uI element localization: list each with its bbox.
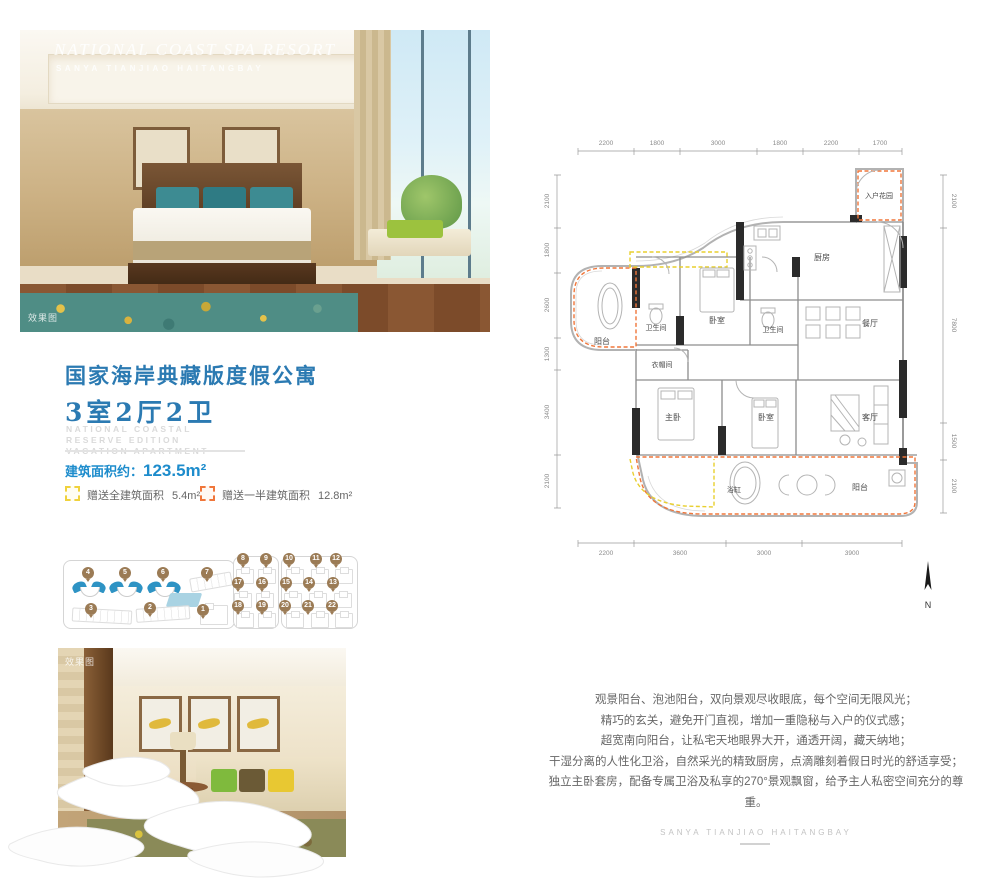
dim-label: 2600 [544,297,551,312]
dim-label: 2200 [599,140,614,147]
orange-dashed-swatch [200,486,215,501]
building-footprint [236,613,254,628]
bedroom-photo: NATIONAL COAST SPA RESORT SANYA TIANJIAO… [20,30,490,332]
dim-label: 3000 [711,140,726,147]
photo-rug [20,293,358,332]
building-pin: 18 [232,600,244,612]
building-pin: 22 [326,600,338,612]
photo-cushion [387,220,443,238]
room-label: 衣帽间 [652,360,673,369]
photo-bed-runner [133,241,312,259]
unit-outline [571,169,917,516]
english-caption: NATIONAL COASTAL RESERVE EDITION VACATIO… [66,424,209,457]
room-label: 阳台 [594,336,610,346]
feature-line: 超宽南向阳台，让私宅天地眼界大开，通透开阔，藏天纳地； [540,731,972,752]
legend-gift-full: 赠送全建筑面积5.4m² [65,486,200,502]
building-pin: 15 [280,577,292,589]
footer-rule [740,843,770,845]
english-caption-line: RESERVE EDITION [66,435,209,446]
room-label: 阳台 [852,482,868,492]
room-label: 卫生间 [763,325,784,334]
north-label: N [925,600,932,610]
rendering-watermark: 效果图 [28,311,58,324]
siteplan-left-panel: 4 5 6 7 3 2 1 [63,560,235,629]
rendering-watermark: 效果图 [65,655,95,668]
feature-description: 观景阳台、泡池阳台，双向景观尽收眼底，每个空间无限风光； 精巧的玄关，避免开门直… [540,690,972,813]
building-pin: 14 [303,577,315,589]
building-footprint [258,613,276,628]
dim-label: 3600 [673,550,688,557]
building-pin: 12 [330,553,342,565]
room-label: 卫生间 [646,323,667,332]
building-pin: 10 [283,553,295,565]
building-pin: 9 [260,553,272,565]
building-pin: 21 [302,600,314,612]
area-value: 123.5m² [143,461,206,480]
resort-subtitle: SANYA TIANJIAO HAITANGBAY [56,64,264,73]
divider [65,450,245,452]
feature-line: 独立主卧套房，配备专属卫浴及私享的270°景观飘窗，给予主人私密空间充分的尊重。 [540,772,972,813]
north-arrow: N [925,561,932,610]
room-label: 卧室 [758,412,774,422]
dim-label: 3400 [544,404,551,419]
building-pin: 20 [279,600,291,612]
area-label: 建筑面积约： [65,464,143,479]
photo-ceiling-cove [48,54,398,104]
building-pin: 7 [201,567,213,579]
legend-gift-half: 赠送一半建筑面积12.8m² [200,486,352,502]
feature-line: 精巧的玄关，避免开门直视，增加一重隐秘与入户的仪式感； [540,711,972,732]
photo-bed [133,208,312,268]
building-pin: 13 [327,577,339,589]
room-label: 主卧 [665,412,681,422]
room-label: 入户花园 [865,191,893,200]
building-pin: 11 [310,553,322,565]
yellow-dashed-swatch [65,486,80,501]
building-pin: 16 [256,577,268,589]
dim-label: 1800 [773,140,788,147]
building-pin: 1 [197,604,209,616]
legend-value: 12.8m² [318,490,352,502]
footer-brand: SANYA TIANJIAO HAITANGBAY [540,828,972,837]
swirl-decoration [0,748,380,884]
room-label: 卧室 [709,315,725,325]
building-pin: 19 [256,600,268,612]
dim-label: 1800 [650,140,665,147]
legend-label: 赠送全建筑面积 [87,490,164,502]
room-label: 客厅 [862,412,878,422]
dim-label: 3900 [845,550,860,557]
building-pin: 3 [85,603,97,615]
legend-label: 赠送一半建筑面积 [222,490,310,502]
photo-curtain [354,30,392,260]
building-footprint [286,613,304,628]
building-pin: 8 [237,553,249,565]
building-terrace [72,607,133,624]
wall-art [237,696,280,752]
dim-label: 1500 [950,434,957,449]
dim-label: 2100 [544,193,551,208]
dim-label: 7800 [950,318,957,333]
dim-label: 1700 [873,140,888,147]
dim-label: 1300 [544,346,551,361]
room-label: 浴缸 [727,485,741,494]
dim-label: 2200 [599,550,614,557]
resort-title: NATIONAL COAST SPA RESORT [54,40,336,60]
area-info: 建筑面积约：123.5m² [65,461,206,481]
building-pin: 4 [82,567,94,579]
building-pin: 2 [144,602,156,614]
legend-value: 5.4m² [172,490,200,502]
building-footprint [335,613,353,628]
feature-line: 干湿分离的人性化卫浴，自然采光的精致厨房，点滴雕刻着假日时光的舒适享受； [540,752,972,773]
dim-label: 2100 [544,473,551,488]
building-pin: 6 [157,567,169,579]
dim-label: 3000 [757,550,772,557]
dim-label: 2100 [950,194,957,209]
dim-label: 2200 [824,140,839,147]
dim-label: 2100 [950,479,957,494]
page-title: 国家海岸典藏版度假公寓 [65,360,318,390]
brochure-page: NATIONAL COAST SPA RESORT SANYA TIANJIAO… [0,0,1000,884]
feature-line: 观景阳台、泡池阳台，双向景观尽收眼底，每个空间无限风光； [540,690,972,711]
siteplan-right-panel-a [233,556,279,629]
floor-plan: 2200 1800 3000 1800 2200 1700 2100 1800 … [540,118,960,618]
building-footprint [311,613,329,628]
siteplan-right-panel-b [281,556,358,629]
building-pin: 17 [232,577,244,589]
building-pin: 5 [119,567,131,579]
room-label: 餐厅 [862,319,878,328]
room-label: 厨房 [814,252,830,262]
english-caption-line: NATIONAL COASTAL [66,424,209,435]
dim-label: 1800 [544,242,551,257]
